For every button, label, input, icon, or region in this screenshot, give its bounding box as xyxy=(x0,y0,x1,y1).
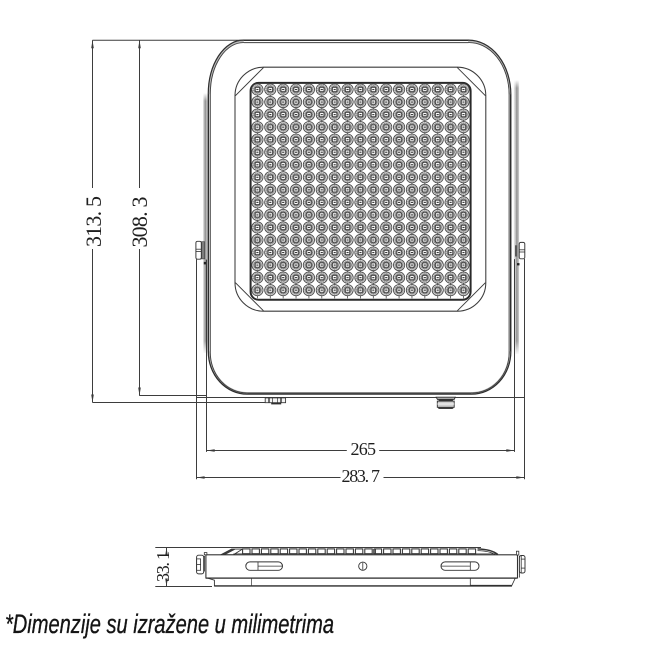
svg-text:33. 1: 33. 1 xyxy=(153,551,173,582)
svg-text:*Dimenzije su izražene u milim: *Dimenzije su izražene u milimetrima xyxy=(5,609,334,639)
svg-text:308. 3: 308. 3 xyxy=(127,197,152,248)
svg-text:283. 7: 283. 7 xyxy=(342,466,381,486)
svg-text:313. 5: 313. 5 xyxy=(81,196,106,247)
svg-text:265: 265 xyxy=(351,439,377,459)
